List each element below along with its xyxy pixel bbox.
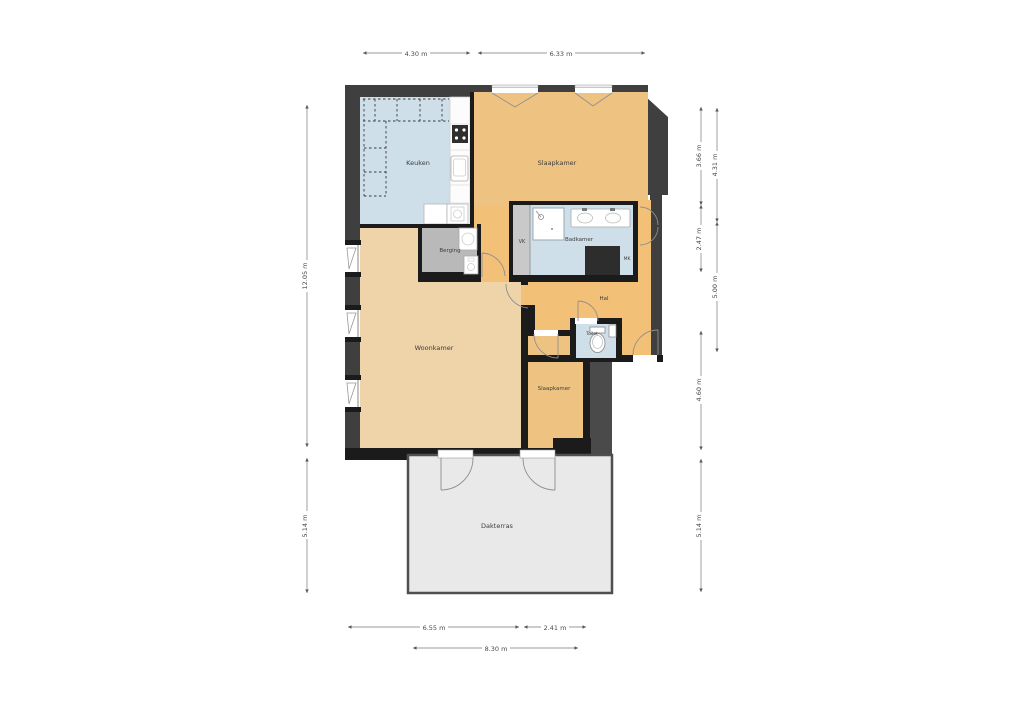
room-label-berging: Berging bbox=[439, 248, 460, 254]
dimension-label: 6.55 m bbox=[423, 624, 446, 632]
floorplan-page: Keuken Slaapkamer Berging VK Badkamer MK… bbox=[0, 0, 1024, 702]
boiler-icon bbox=[459, 228, 477, 250]
dimension-label: 5.00 m bbox=[711, 276, 719, 299]
toilet-washbasin-icon bbox=[609, 325, 616, 337]
kitchen-appliances bbox=[424, 204, 468, 224]
cooktop-icon bbox=[452, 125, 468, 143]
mk-meter-cupboard bbox=[585, 246, 620, 275]
room-label-slaapkamer-bottom: Slaapkamer bbox=[538, 386, 571, 392]
room-label-vk: VK bbox=[519, 239, 526, 245]
window-icon bbox=[345, 240, 361, 277]
room-label-dakterras: Dakterras bbox=[481, 522, 514, 530]
dimension-label: 3.66 m bbox=[695, 145, 703, 168]
dimension-label: 4.31 m bbox=[711, 154, 719, 177]
dimension-label: 12.05 m bbox=[301, 262, 309, 289]
toilet-icon bbox=[590, 327, 605, 353]
room-label-slaapkamer-top: Slaapkamer bbox=[538, 159, 577, 167]
double-washbasin-icon bbox=[571, 208, 630, 227]
dimension-label: 6.33 m bbox=[550, 50, 573, 58]
toilet-room bbox=[576, 324, 616, 358]
dimension-label: 2.47 m bbox=[695, 228, 703, 251]
dimension-label: 5.14 m bbox=[301, 515, 309, 538]
dimension-label: 4.60 m bbox=[695, 379, 703, 402]
dimension-label: 5.14 m bbox=[695, 515, 703, 538]
window-icon bbox=[345, 305, 361, 342]
room-label-badkamer: Badkamer bbox=[565, 237, 594, 243]
room-slaapkamer-top-floor bbox=[474, 92, 648, 205]
dimension-label: 2.41 m bbox=[544, 624, 567, 632]
room-label-toilet: Toilet bbox=[585, 331, 598, 337]
room-label-keuken: Keuken bbox=[406, 159, 430, 167]
washing-machine-icon bbox=[447, 204, 468, 224]
shower-icon bbox=[533, 208, 564, 240]
cv-unit-icon bbox=[464, 256, 478, 274]
dimension-label: 8.30 m bbox=[485, 645, 508, 653]
room-label-mk: MK bbox=[624, 256, 632, 262]
window-icon bbox=[345, 375, 361, 412]
room-label-woonkamer: Woonkamer bbox=[415, 344, 454, 352]
dimension-label: 4.30 m bbox=[405, 50, 428, 58]
left-windows bbox=[345, 240, 361, 412]
room-label-hal: Hal bbox=[599, 296, 609, 302]
floor-plan-svg: Keuken Slaapkamer Berging VK Badkamer MK… bbox=[0, 0, 1024, 702]
kitchen-sink-icon bbox=[451, 156, 468, 181]
